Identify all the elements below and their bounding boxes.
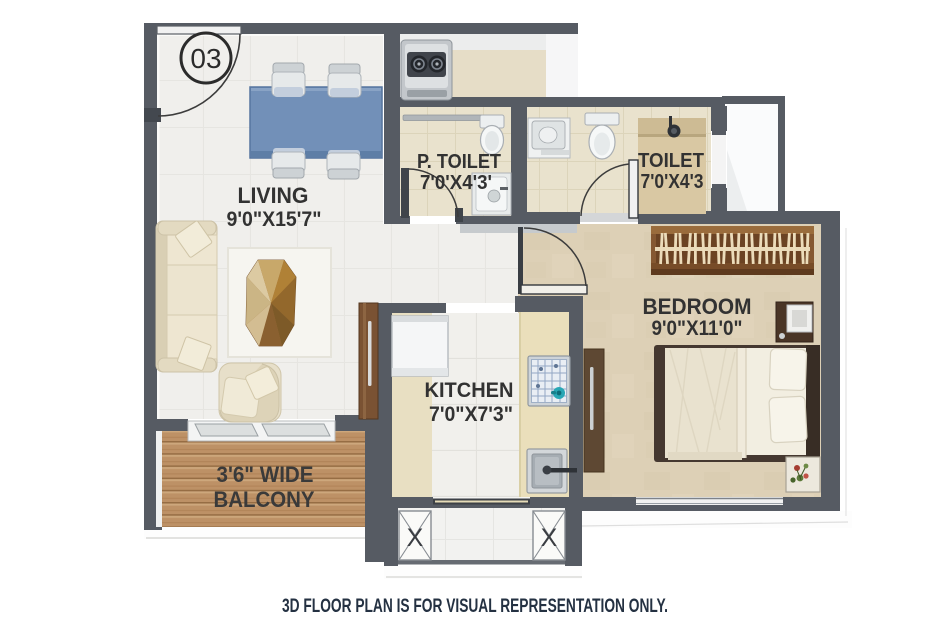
svg-text:7'0'X4'3: 7'0'X4'3: [641, 171, 704, 193]
svg-text:X: X: [541, 524, 558, 552]
svg-text:9'0"X15'7": 9'0"X15'7": [227, 207, 322, 231]
svg-text:03: 03: [190, 43, 221, 74]
svg-text:TOILET: TOILET: [638, 150, 704, 172]
svg-text:X: X: [407, 524, 424, 552]
svg-text:KITCHEN: KITCHEN: [425, 378, 514, 402]
svg-text:7'0'X4'3': 7'0'X4'3': [420, 172, 492, 194]
svg-text:P. TOILET: P. TOILET: [417, 151, 501, 173]
svg-text:3'6" WIDE: 3'6" WIDE: [217, 462, 314, 487]
svg-text:3D FLOOR PLAN IS FOR VISUAL RE: 3D FLOOR PLAN IS FOR VISUAL REPRESENTATI…: [282, 596, 668, 617]
svg-text:LIVING: LIVING: [238, 183, 309, 208]
svg-text:BALCONY: BALCONY: [214, 487, 315, 512]
svg-text:9'0"X11'0": 9'0"X11'0": [652, 316, 743, 340]
svg-text:7'0"X7'3": 7'0"X7'3": [429, 402, 513, 426]
